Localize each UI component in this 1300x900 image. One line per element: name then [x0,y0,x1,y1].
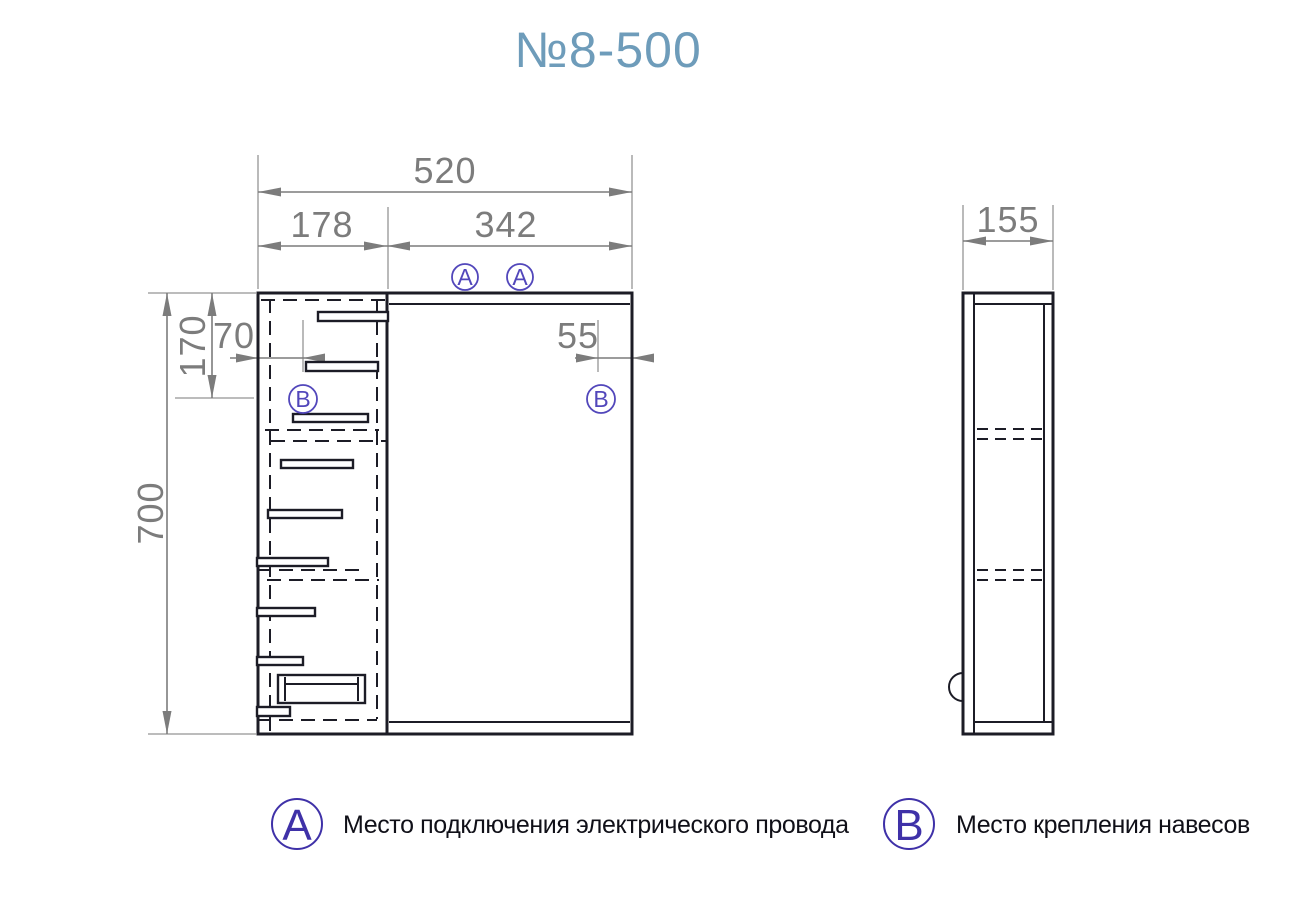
side-view: 155 [949,199,1053,734]
dim-hanger-from-top-label: 170 [172,314,213,377]
bottom-drawer-box [278,675,365,703]
dim-hanger-from-right-label: 55 [557,315,599,356]
dim-total-height-label: 700 [130,481,171,544]
dim-total-width: 520 [258,150,632,197]
marker-hanger-left: B [289,385,317,413]
marker-hanger-right-letter: B [593,386,608,412]
dim-total-width-label: 520 [413,150,476,191]
legend-electric-label: Место подключения электрического провода [343,811,849,839]
side-inner-frame [974,304,1053,722]
marker-hanger-left-letter: B [295,386,310,412]
dim-hanger-from-left-label: 70 [213,315,255,356]
marker-electric-1-letter: A [457,264,473,290]
drawing-title: №8-500 [514,22,702,78]
dim-depth: 155 [963,199,1053,290]
legend-hanger: B Место крепления навесов [884,799,1250,850]
door-handle [949,673,963,701]
side-outline [963,293,1053,734]
dim-hanger-from-top: 170 [172,293,217,398]
front-view: 520 178 342 700 170 [130,150,654,734]
legend-electric: A Место подключения электрического прово… [272,799,849,850]
marker-hanger-right: B [587,385,615,413]
dim-left-width: 178 [258,204,387,251]
marker-electric-1: A [452,264,478,290]
legend-hanger-label: Место крепления навесов [956,811,1250,839]
dim-left-width-label: 178 [290,204,353,245]
legend-electric-letter: A [282,801,312,850]
dim-right-width-label: 342 [474,204,537,245]
dim-total-height: 700 [130,293,172,734]
open-section-shelves [257,312,388,716]
marker-electric-2: A [507,264,533,290]
technical-drawing: №8-500 520 178 [0,0,1300,900]
front-extension-lines [148,155,632,734]
marker-electric-2-letter: A [512,264,528,290]
side-hidden-shelves [977,429,1042,580]
dim-hanger-from-left: 70 [213,315,325,363]
dim-depth-label: 155 [976,199,1039,240]
drawing-page: №8-500 520 178 [0,0,1300,900]
legend: A Место подключения электрического прово… [272,799,1250,850]
legend-hanger-letter: B [894,801,923,850]
cabinet-door [389,304,630,722]
dim-hanger-from-right: 55 [557,315,654,363]
dim-right-width: 342 [387,204,632,251]
